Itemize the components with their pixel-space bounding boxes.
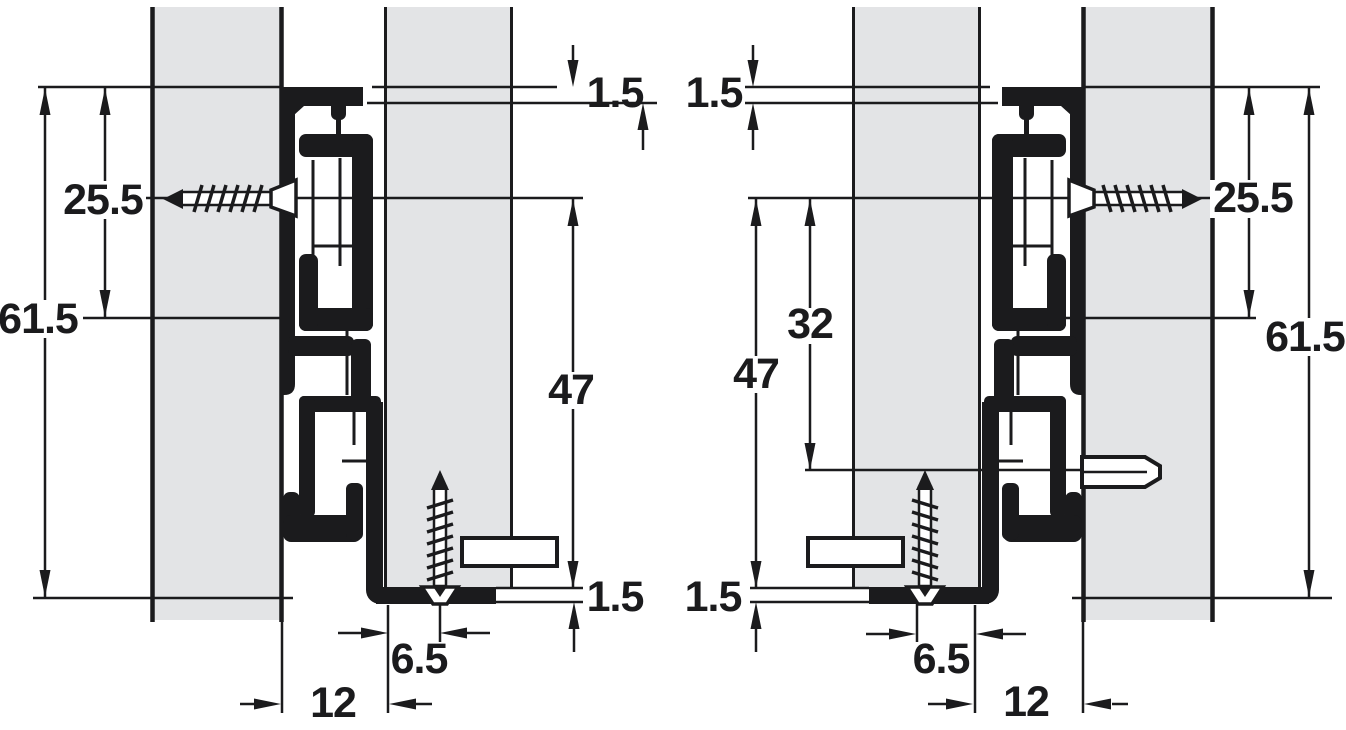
dim-label-screw-axis-right: 25.5	[1213, 174, 1293, 222]
dim-label-screw-inset-left: 6.5	[391, 635, 448, 683]
dim-label-overall-right: 61.5	[1265, 313, 1345, 361]
dim-label-bottom-height-right: 47	[733, 350, 779, 398]
dim-label-bottom-height-left: 47	[548, 366, 594, 414]
dim-label-top-clearance-right: 1.5	[686, 69, 743, 117]
dim-label-overall-left: 61.5	[0, 295, 78, 343]
dim-label-bottom-thickness-right: 1.5	[685, 573, 742, 621]
runner-installation-drawing: 61.5 25.5 1.5 47 1.5 6.5 12 1.5 47 32 25…	[0, 0, 1346, 730]
dim-label-front-offset-left: 12	[310, 679, 356, 727]
dim-label-top-clearance-left: 1.5	[587, 69, 644, 117]
dim-label-pin-spacing-right: 32	[787, 300, 833, 348]
right-view-arrowheads	[748, 60, 1315, 710]
dim-label-screw-axis-left: 25.5	[63, 176, 143, 224]
dowel-pin	[1082, 457, 1160, 487]
dim-label-screw-inset-right: 6.5	[913, 635, 970, 683]
installation-drawing-page: 61.5 25.5 1.5 47 1.5 6.5 12 1.5 47 32 25…	[0, 0, 1346, 730]
dim-label-front-offset-right: 12	[1003, 678, 1049, 726]
dim-label-bottom-thickness-left: 1.5	[587, 573, 644, 621]
